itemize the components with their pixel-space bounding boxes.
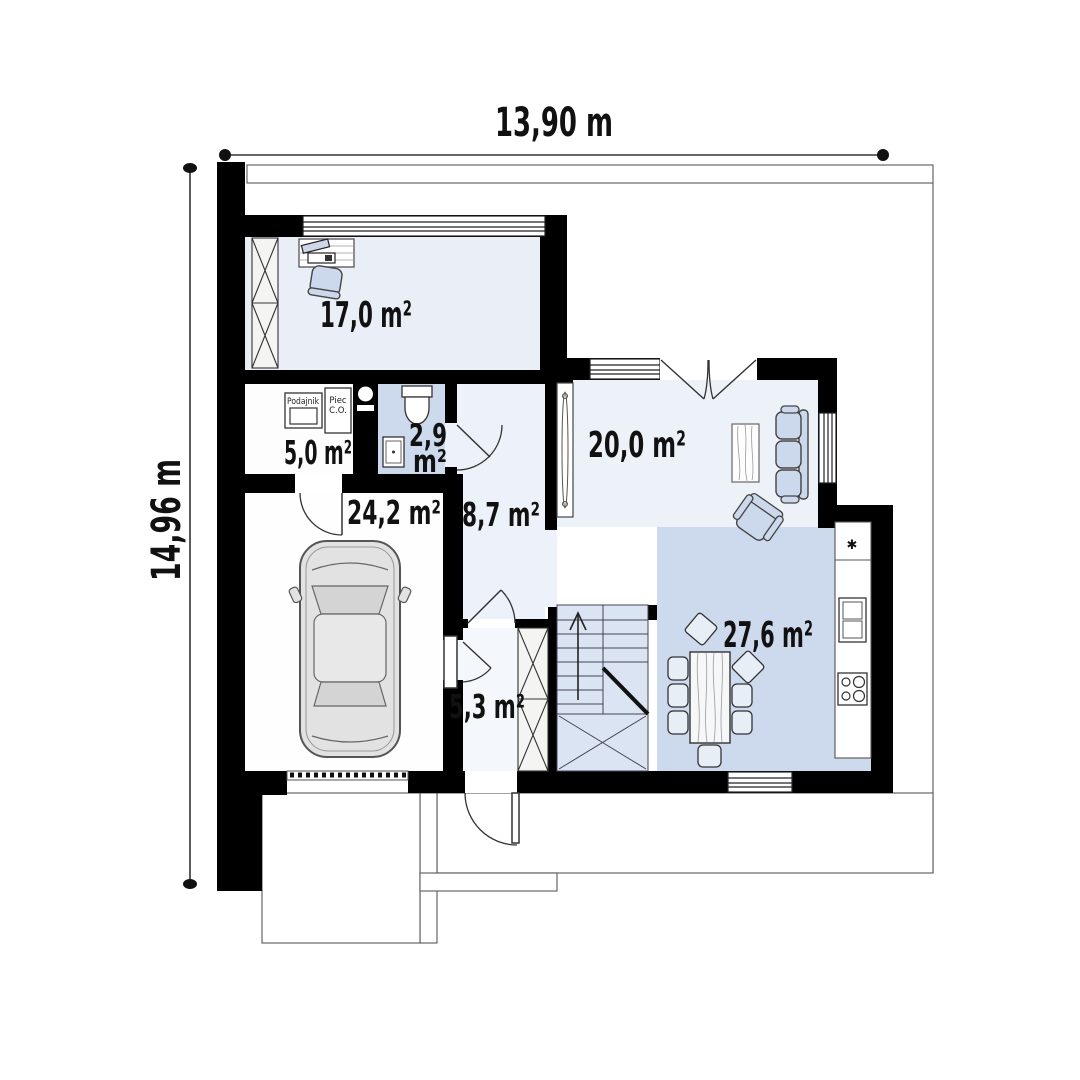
dining-chair [698, 745, 721, 767]
garage-area-label: 24,2 m² [347, 493, 441, 532]
car-rear-window [314, 682, 386, 706]
feeder-unit: Podajnik [285, 393, 322, 428]
car [288, 541, 412, 757]
wall-garage-right-upper [443, 493, 463, 640]
bathroom-area-unit-label: m² [413, 444, 447, 480]
dimension-endpoint-dot [183, 879, 197, 889]
kitchen-counter: ✱ [835, 522, 871, 758]
central-heating-boiler: Piec C.O. [325, 388, 351, 433]
wall-left [217, 162, 245, 891]
window-dining-bottom [728, 772, 792, 792]
garage-vestibule-door-leaf [444, 636, 457, 688]
floor-plan-page: 13,90 m 14,96 m [0, 0, 1080, 1080]
dining-chair [668, 657, 688, 680]
dining-chair [668, 711, 688, 734]
dimension-width-label: 13,90 m [495, 100, 613, 146]
office-wardrobe [252, 238, 278, 368]
staircase [557, 605, 648, 771]
dining-chair [732, 684, 752, 707]
wall-garage-top-left [245, 474, 295, 493]
office-desk [299, 239, 354, 267]
dimension-endpoint-dot [219, 149, 231, 161]
dining-kitchen-area-label: 27,6 m² [723, 615, 813, 656]
boiler-label-line1: Piec [329, 396, 347, 406]
wall-garage-bottom-left [245, 771, 287, 795]
wall-hall-living [545, 380, 557, 530]
window-living-right [819, 413, 836, 483]
boiler-label-line2: C.O. [329, 406, 347, 416]
dining-chair [732, 711, 752, 734]
hall-passage-floor [545, 528, 557, 607]
cooktop [838, 673, 867, 705]
office-area-label: 17,0 m² [320, 295, 412, 336]
sofa [776, 406, 808, 503]
car-windshield [312, 586, 388, 614]
dimension-endpoint-dot [877, 149, 889, 161]
kitchen-star-symbol: ✱ [847, 538, 858, 553]
floor-plan-canvas: 13,90 m 14,96 m [0, 0, 1080, 1080]
wall-office-divider [245, 370, 573, 384]
wall-hall-vestibule-left [450, 619, 468, 628]
dining-chair [668, 684, 688, 707]
kitchen-sink [839, 598, 866, 642]
driveway [262, 793, 420, 943]
dimension-top: 13,90 m [219, 100, 889, 161]
entry-step [420, 873, 557, 891]
hall-area-label: 8,7 m² [462, 495, 540, 534]
bathroom-sink [383, 437, 404, 467]
wall-office-right [540, 215, 567, 380]
boiler-room-area-label: 5,0 m² [284, 433, 352, 472]
eaves-strip [247, 165, 933, 183]
garage-door [287, 771, 408, 780]
car-roof [314, 614, 386, 682]
feeder-label: Podajnik [287, 397, 319, 407]
radiator [557, 383, 573, 517]
window-office-top [303, 216, 545, 236]
coffee-table [732, 424, 759, 482]
dimension-endpoint-dot [183, 163, 197, 173]
entry-door-leaf [512, 793, 519, 843]
dining-table [690, 652, 730, 743]
living-room-area-label: 20,0 m² [588, 425, 686, 466]
window-living-top [590, 359, 660, 379]
chimney [353, 380, 378, 413]
wall-kitchen-right [871, 505, 893, 793]
wall-hall-vestibule-right [515, 619, 548, 628]
dimension-left: 14,96 m [144, 163, 197, 889]
porch-strip [420, 793, 437, 943]
dimension-height-label: 14,96 m [144, 459, 190, 581]
vestibule-area-label: 5,3 m² [449, 687, 525, 726]
